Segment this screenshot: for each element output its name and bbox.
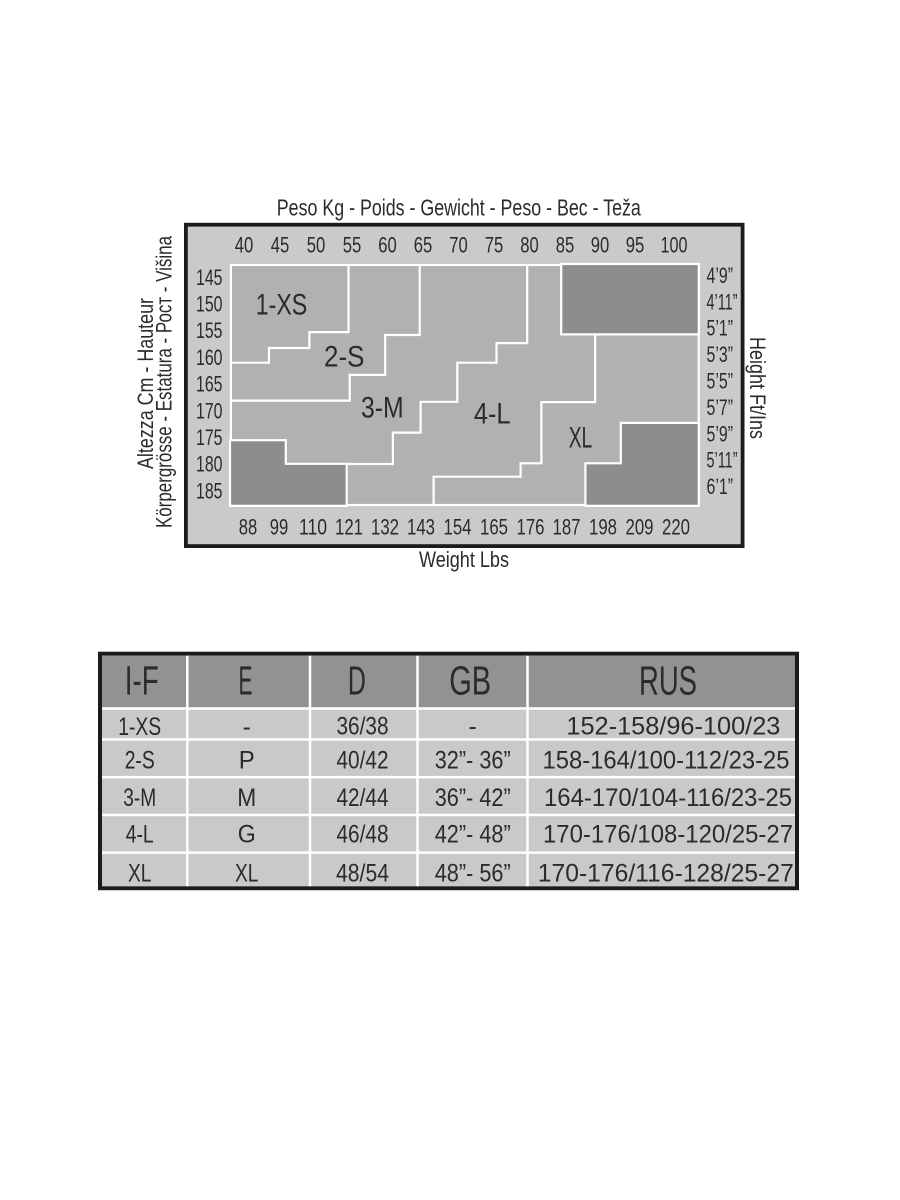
svg-text:45: 45 — [271, 232, 290, 257]
svg-text:XL: XL — [569, 422, 593, 455]
svg-text:154: 154 — [444, 515, 472, 540]
svg-text:Altezza Cm - Hauteur: Altezza Cm - Hauteur — [133, 298, 158, 469]
svg-text:I-F: I-F — [125, 658, 159, 704]
svg-text:60: 60 — [378, 232, 397, 257]
svg-text:132: 132 — [371, 515, 399, 540]
svg-text:Height Ft/Ins: Height Ft/Ins — [745, 337, 770, 439]
svg-text:176: 176 — [517, 515, 545, 540]
svg-text:1-XS: 1-XS — [118, 713, 161, 741]
svg-text:198: 198 — [589, 515, 617, 540]
svg-text:85: 85 — [556, 232, 575, 257]
svg-text:2-S: 2-S — [324, 341, 364, 374]
svg-text:E: E — [239, 658, 253, 704]
svg-text:42/44: 42/44 — [337, 784, 389, 812]
svg-text:187: 187 — [553, 515, 581, 540]
svg-text:75: 75 — [485, 232, 504, 257]
svg-text:121: 121 — [335, 515, 363, 540]
svg-text:D: D — [348, 658, 366, 704]
svg-text:3-M: 3-M — [361, 392, 404, 425]
svg-text:155: 155 — [196, 318, 223, 343]
svg-text:5’7”: 5’7” — [707, 395, 734, 420]
svg-text:5’5”: 5’5” — [707, 369, 734, 394]
svg-text:145: 145 — [196, 265, 223, 290]
svg-text:164-170/104-116/23-25: 164-170/104-116/23-25 — [544, 784, 792, 812]
svg-text:RUS: RUS — [639, 658, 697, 704]
svg-text:M: M — [237, 784, 256, 812]
svg-text:170: 170 — [196, 398, 223, 423]
svg-text:46/48: 46/48 — [337, 821, 389, 849]
svg-text:143: 143 — [407, 515, 435, 540]
svg-text:GB: GB — [449, 658, 491, 704]
svg-text:80: 80 — [520, 232, 539, 257]
svg-text:152-158/96-100/23: 152-158/96-100/23 — [566, 713, 780, 741]
svg-text:Peso Kg - Poids - Gewicht - Pe: Peso Kg - Poids - Gewicht - Peso - Bec -… — [277, 194, 641, 220]
svg-text:4-L: 4-L — [474, 397, 511, 430]
svg-text:170-176/108-120/25-27: 170-176/108-120/25-27 — [543, 821, 793, 849]
svg-text:150: 150 — [196, 292, 223, 317]
svg-text:4’9”: 4’9” — [707, 263, 734, 288]
svg-text:-: - — [243, 713, 251, 741]
svg-text:5’1”: 5’1” — [707, 316, 734, 341]
svg-text:4-L: 4-L — [126, 821, 154, 849]
svg-text:42”- 48”: 42”- 48” — [435, 821, 511, 849]
svg-text:65: 65 — [414, 232, 433, 257]
svg-text:185: 185 — [196, 478, 223, 503]
svg-text:175: 175 — [196, 425, 223, 450]
svg-text:100: 100 — [661, 232, 688, 257]
svg-text:5’11”: 5’11” — [707, 448, 738, 473]
svg-text:40: 40 — [235, 232, 254, 257]
svg-text:3-M: 3-M — [123, 784, 156, 812]
svg-text:209: 209 — [626, 515, 654, 540]
svg-text:165: 165 — [196, 372, 223, 397]
svg-text:55: 55 — [343, 232, 362, 257]
svg-text:36”- 42”: 36”- 42” — [435, 784, 511, 812]
svg-text:50: 50 — [307, 232, 326, 257]
svg-text:88: 88 — [239, 515, 258, 540]
svg-text:165: 165 — [480, 515, 508, 540]
svg-text:XL: XL — [235, 860, 259, 888]
svg-text:1-XS: 1-XS — [256, 288, 308, 321]
svg-text:2-S: 2-S — [125, 747, 155, 775]
svg-text:4’11”: 4’11” — [707, 289, 738, 314]
svg-text:70: 70 — [449, 232, 468, 257]
svg-text:6’1”: 6’1” — [707, 474, 734, 499]
svg-text:32”- 36”: 32”- 36” — [435, 747, 511, 775]
svg-text:170-176/116-128/25-27: 170-176/116-128/25-27 — [538, 860, 794, 888]
svg-text:40/42: 40/42 — [337, 747, 389, 775]
svg-text:99: 99 — [270, 515, 289, 540]
svg-text:90: 90 — [591, 232, 610, 257]
svg-text:XL: XL — [128, 860, 152, 888]
svg-text:158-164/100-112/23-25: 158-164/100-112/23-25 — [543, 747, 790, 775]
svg-text:220: 220 — [662, 515, 690, 540]
svg-text:Weight Lbs: Weight Lbs — [419, 547, 509, 572]
svg-text:110: 110 — [299, 515, 327, 540]
svg-text:48”- 56”: 48”- 56” — [435, 860, 511, 888]
svg-text:36/38: 36/38 — [337, 713, 389, 741]
svg-text:48/54: 48/54 — [336, 860, 389, 888]
svg-text:-: - — [469, 713, 477, 741]
svg-text:180: 180 — [196, 452, 223, 477]
svg-text:G: G — [238, 821, 256, 849]
svg-text:5’3”: 5’3” — [707, 342, 734, 367]
svg-text:5’9”: 5’9” — [707, 421, 734, 446]
svg-text:160: 160 — [196, 345, 223, 370]
svg-text:P: P — [239, 747, 255, 775]
svg-text:95: 95 — [626, 232, 645, 257]
